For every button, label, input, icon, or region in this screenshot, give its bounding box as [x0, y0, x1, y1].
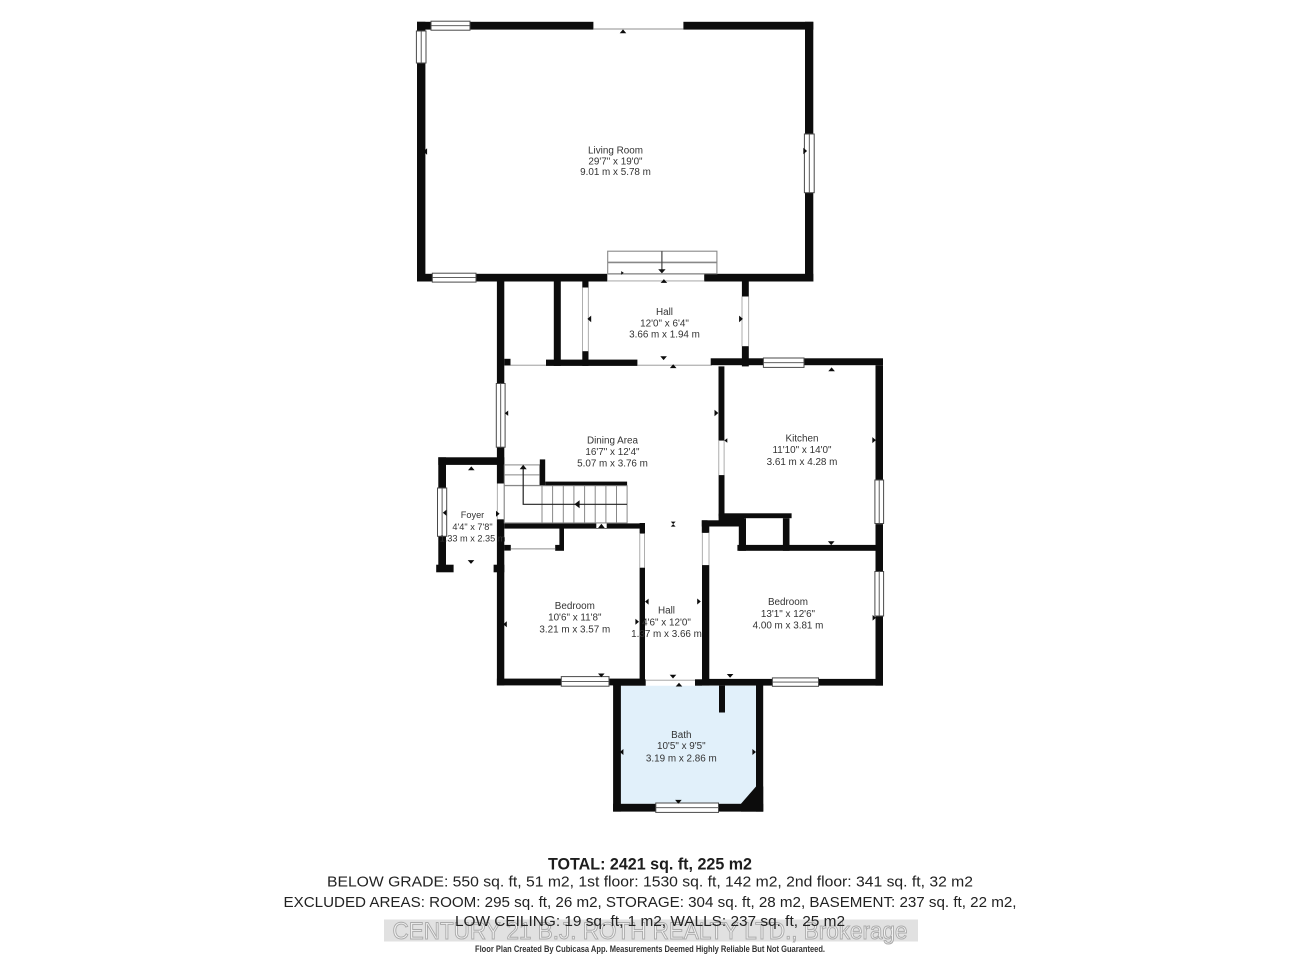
svg-text:Dining Area: Dining Area [587, 436, 639, 447]
svg-text:Bath: Bath [671, 730, 691, 741]
svg-text:13'1" x 12'6": 13'1" x 12'6" [761, 609, 816, 620]
svg-text:9.01 m x 5.78 m: 9.01 m x 5.78 m [580, 167, 651, 178]
svg-text:BELOW GRADE: 550 sq. ft, 51 m2: BELOW GRADE: 550 sq. ft, 51 m2, 1st floo… [327, 873, 973, 890]
svg-text:1.37 m x 3.66 m: 1.37 m x 3.66 m [631, 629, 702, 640]
svg-text:TOTAL: 2421 sq. ft, 225 m2: TOTAL: 2421 sq. ft, 225 m2 [548, 855, 752, 874]
svg-text:LOW CEILING: 19 sq. ft, 1 m2,: LOW CEILING: 19 sq. ft, 1 m2, WALLS: 237… [455, 913, 845, 930]
svg-text:EXCLUDED AREAS: ROOM: 295 sq.: EXCLUDED AREAS: ROOM: 295 sq. ft, 26 m2,… [284, 894, 1017, 911]
svg-text:3.19 m x 2.86 m: 3.19 m x 2.86 m [646, 754, 717, 765]
svg-text:11'10" x 14'0": 11'10" x 14'0" [773, 445, 832, 456]
svg-text:4'6" x 12'0": 4'6" x 12'0" [642, 617, 691, 628]
svg-text:10'6" x 11'8": 10'6" x 11'8" [548, 613, 602, 624]
svg-text:Bedroom: Bedroom [768, 597, 808, 608]
svg-text:Floor Plan Created By Cubicasa: Floor Plan Created By Cubicasa App. Meas… [475, 944, 825, 955]
svg-text:3.66 m x 1.94 m: 3.66 m x 1.94 m [629, 330, 700, 341]
svg-text:Living Room: Living Room [588, 146, 643, 157]
svg-text:5.07 m x 3.76 m: 5.07 m x 3.76 m [577, 458, 648, 469]
svg-text:4'4" x 7'8": 4'4" x 7'8" [452, 522, 492, 532]
svg-text:Foyer: Foyer [461, 510, 485, 520]
svg-text:Hall: Hall [658, 606, 675, 617]
svg-text:3.21 m x 3.57 m: 3.21 m x 3.57 m [539, 624, 610, 635]
svg-text:4.00 m x 3.81 m: 4.00 m x 3.81 m [753, 621, 824, 632]
svg-text:12'0" x 6'4": 12'0" x 6'4" [640, 318, 689, 329]
svg-text:Bedroom: Bedroom [555, 601, 595, 612]
svg-text:Kitchen: Kitchen [786, 433, 819, 444]
svg-text:Hall: Hall [656, 307, 673, 318]
svg-text:10'5" x 9'5": 10'5" x 9'5" [657, 741, 706, 752]
svg-text:29'7" x 19'0": 29'7" x 19'0" [588, 156, 643, 167]
svg-text:16'7" x 12'4": 16'7" x 12'4" [585, 447, 640, 458]
svg-text:1.33 m x 2.35 m: 1.33 m x 2.35 m [440, 533, 506, 543]
svg-text:3.61 m x 4.28 m: 3.61 m x 4.28 m [767, 457, 838, 468]
